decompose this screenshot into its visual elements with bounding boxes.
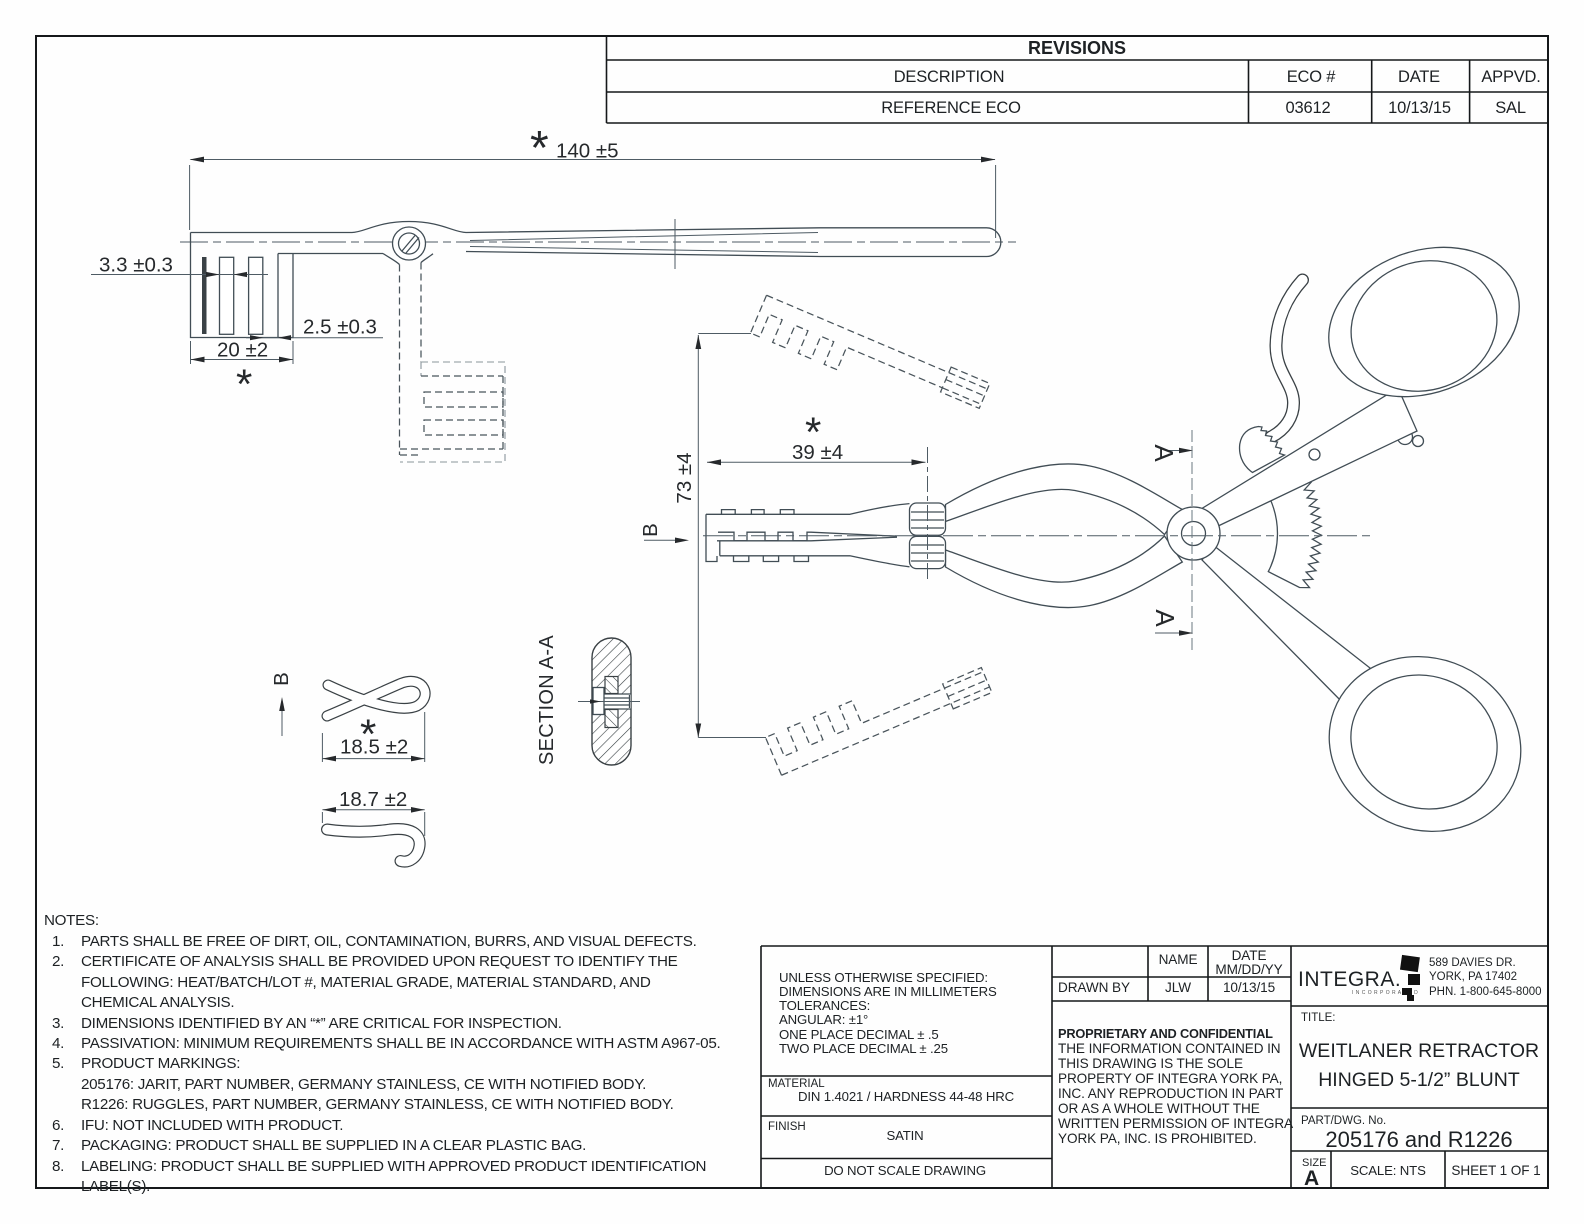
svg-text:SAL: SAL — [1495, 99, 1526, 117]
svg-text:CHEMICAL ANALYSIS.: CHEMICAL ANALYSIS. — [81, 994, 234, 1011]
svg-text:LABEL(S).: LABEL(S). — [81, 1178, 150, 1195]
svg-text:*: * — [530, 122, 549, 175]
svg-text:DRAWN BY: DRAWN BY — [1058, 980, 1130, 995]
svg-text:ECO #: ECO # — [1287, 68, 1337, 86]
svg-text:18.5 ±2: 18.5 ±2 — [340, 736, 408, 759]
svg-text:WEITLANER RETRACTOR: WEITLANER RETRACTOR — [1299, 1040, 1539, 1062]
svg-text:ANGULAR: ±1°: ANGULAR: ±1° — [779, 1012, 868, 1027]
svg-text:FINISH: FINISH — [768, 1121, 806, 1133]
svg-text:5.: 5. — [52, 1055, 64, 1072]
svg-text:2.: 2. — [52, 953, 64, 970]
svg-text:YORK PA, INC. IS PROHIBITED.: YORK PA, INC. IS PROHIBITED. — [1058, 1131, 1257, 1146]
svg-text:YORK, PA 17402: YORK, PA 17402 — [1429, 971, 1517, 983]
svg-text:TITLE:: TITLE: — [1301, 1012, 1336, 1024]
svg-text:DIMENSIONS ARE IN MILLIMETERS: DIMENSIONS ARE IN MILLIMETERS — [779, 984, 997, 999]
svg-text:NAME: NAME — [1159, 952, 1198, 967]
svg-text:140 ±5: 140 ±5 — [556, 140, 619, 163]
svg-text:NOTES:: NOTES: — [44, 912, 99, 929]
svg-text:A: A — [1150, 609, 1180, 627]
svg-text:DIMENSIONS IDENTIFIED BY AN “*: DIMENSIONS IDENTIFIED BY AN “*” ARE CRIT… — [81, 1015, 562, 1032]
svg-text:CERTIFICATE OF ANALYSIS SHALL: CERTIFICATE OF ANALYSIS SHALL BE PROVIDE… — [81, 953, 678, 970]
svg-text:PARTS SHALL BE FREE OF DIRT, O: PARTS SHALL BE FREE OF DIRT, OIL, CONTAM… — [81, 933, 697, 950]
svg-text:DIN 1.4021 / HARDNESS 44-48 HR: DIN 1.4021 / HARDNESS 44-48 HRC — [798, 1089, 1015, 1104]
svg-text:THE INFORMATION CONTAINED IN: THE INFORMATION CONTAINED IN — [1058, 1041, 1281, 1056]
svg-text:589 DAVIES DR.: 589 DAVIES DR. — [1429, 957, 1516, 969]
svg-text:TWO PLACE DECIMAL ± .25: TWO PLACE DECIMAL ± .25 — [779, 1041, 948, 1056]
svg-text:*: * — [805, 409, 821, 456]
svg-text:03612: 03612 — [1286, 99, 1331, 117]
svg-text:PART/DWG. No.: PART/DWG. No. — [1301, 1115, 1386, 1127]
svg-text:OR AS A WHOLE WITHOUT THE: OR AS A WHOLE WITHOUT THE — [1058, 1101, 1260, 1116]
svg-text:UNLESS OTHERWISE SPECIFIED:: UNLESS OTHERWISE SPECIFIED: — [779, 970, 988, 985]
svg-text:2.5 ±0.3: 2.5 ±0.3 — [303, 316, 377, 339]
svg-text:10/13/15: 10/13/15 — [1388, 99, 1451, 117]
svg-text:DO NOT SCALE DRAWING: DO NOT SCALE DRAWING — [824, 1163, 986, 1178]
svg-text:THIS DRAWING IS THE SOLE: THIS DRAWING IS THE SOLE — [1058, 1056, 1243, 1071]
svg-text:*: * — [236, 361, 252, 408]
svg-text:DESCRIPTION: DESCRIPTION — [894, 68, 1005, 86]
svg-text:SHEET 1 OF 1: SHEET 1 OF 1 — [1451, 1163, 1540, 1178]
svg-text:73 ±4: 73 ±4 — [673, 452, 696, 503]
svg-text:20 ±2: 20 ±2 — [217, 339, 268, 362]
svg-text:PASSIVATION: MINIMUM REQUIREME: PASSIVATION: MINIMUM REQUIREMENTS SHALL … — [81, 1035, 720, 1052]
svg-text:INC. ANY REPRODUCTION IN PART: INC. ANY REPRODUCTION IN PART — [1058, 1086, 1283, 1101]
svg-text:10/13/15: 10/13/15 — [1223, 980, 1275, 995]
svg-text:7.: 7. — [52, 1137, 64, 1154]
svg-text:1.: 1. — [52, 933, 64, 950]
svg-text:FOLLOWING: HEAT/BATCH/LOT #, M: FOLLOWING: HEAT/BATCH/LOT #, MATERIAL GR… — [81, 974, 651, 991]
svg-text:IFU: NOT INCLUDED WITH PRODUCT: IFU: NOT INCLUDED WITH PRODUCT. — [81, 1117, 343, 1134]
svg-text:SCALE: NTS: SCALE: NTS — [1350, 1163, 1426, 1178]
svg-text:3.: 3. — [52, 1015, 64, 1032]
svg-text:B: B — [270, 672, 293, 686]
svg-text:DATE: DATE — [1398, 68, 1440, 86]
svg-text:HINGED 5-1/2” BLUNT: HINGED 5-1/2” BLUNT — [1318, 1069, 1520, 1091]
svg-text:205176: JARIT, PART NUMBER, GE: 205176: JARIT, PART NUMBER, GERMANY STAI… — [81, 1076, 646, 1093]
svg-text:18.7 ±2: 18.7 ±2 — [339, 788, 407, 811]
svg-text:JLW: JLW — [1165, 980, 1191, 995]
svg-text:APPVD.: APPVD. — [1481, 68, 1540, 86]
svg-text:MM/DD/YY: MM/DD/YY — [1215, 962, 1282, 977]
svg-text:3.3 ±0.3: 3.3 ±0.3 — [99, 254, 173, 277]
svg-text:R1226: RUGGLES, PART NUMBER, G: R1226: RUGGLES, PART NUMBER, GERMANY STA… — [81, 1096, 674, 1113]
svg-text:B: B — [639, 523, 662, 537]
svg-text:TOLERANCES:: TOLERANCES: — [779, 998, 870, 1013]
svg-text:205176 and R1226: 205176 and R1226 — [1325, 1127, 1512, 1152]
svg-text:WRITTEN PERMISSION OF INTEGRA: WRITTEN PERMISSION OF INTEGRA — [1058, 1116, 1294, 1131]
svg-text:6.: 6. — [52, 1117, 64, 1134]
svg-text:DATE: DATE — [1232, 948, 1267, 963]
svg-text:PROPERTY OF INTEGRA YORK PA,: PROPERTY OF INTEGRA YORK PA, — [1058, 1071, 1282, 1086]
svg-text:INTEGRA.: INTEGRA. — [1298, 968, 1401, 991]
svg-text:A: A — [1304, 1167, 1319, 1190]
svg-text:SATIN: SATIN — [886, 1128, 923, 1143]
svg-text:REVISIONS: REVISIONS — [1028, 38, 1126, 58]
svg-text:REFERENCE ECO: REFERENCE ECO — [881, 99, 1021, 117]
svg-text:A: A — [1149, 444, 1179, 462]
svg-text:8.: 8. — [52, 1158, 64, 1175]
svg-text:LABELING: PRODUCT SHALL BE SUP: LABELING: PRODUCT SHALL BE SUPPLIED WITH… — [81, 1158, 706, 1175]
svg-text:PROPRIETARY AND CONFIDENTIAL: PROPRIETARY AND CONFIDENTIAL — [1058, 1026, 1273, 1041]
svg-text:SECTION A-A: SECTION A-A — [536, 635, 558, 765]
svg-text:PACKAGING: PRODUCT SHALL BE S: PACKAGING: PRODUCT SHALL BE SUPPLIED IN … — [81, 1137, 586, 1154]
svg-text:PHN. 1-800-645-8000: PHN. 1-800-645-8000 — [1429, 986, 1542, 998]
svg-text:4.: 4. — [52, 1035, 64, 1052]
svg-text:ONE PLACE DECIMAL ± .5: ONE PLACE DECIMAL ± .5 — [779, 1027, 939, 1042]
svg-text:PRODUCT MARKINGS:: PRODUCT MARKINGS: — [81, 1055, 240, 1072]
